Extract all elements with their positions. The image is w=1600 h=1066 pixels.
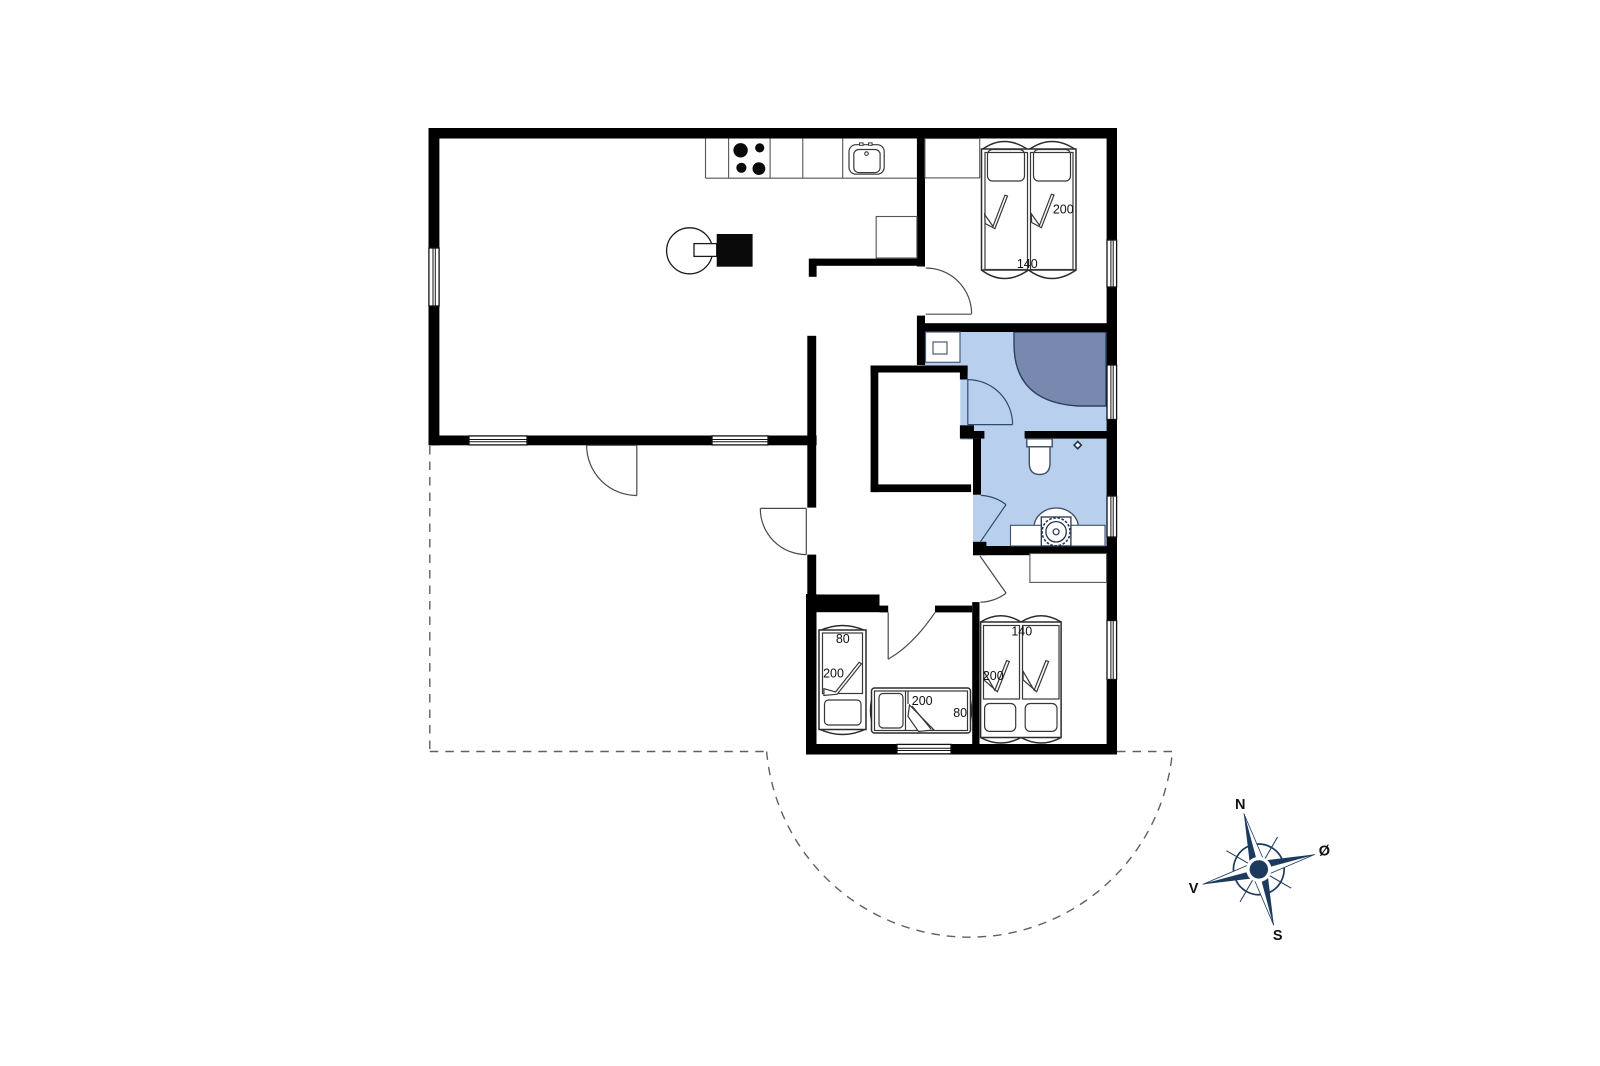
svg-text:S: S [1273, 928, 1283, 944]
svg-text:140: 140 [1011, 625, 1032, 639]
svg-text:80: 80 [836, 632, 850, 646]
svg-text:200: 200 [983, 669, 1004, 683]
svg-text:200: 200 [1053, 203, 1074, 217]
svg-text:Ø: Ø [1319, 844, 1330, 860]
svg-text:80: 80 [953, 706, 967, 720]
svg-text:N: N [1235, 797, 1245, 813]
svg-text:140: 140 [1017, 257, 1038, 271]
svg-text:V: V [1189, 881, 1199, 897]
svg-text:200: 200 [823, 667, 844, 681]
svg-text:200: 200 [912, 694, 933, 708]
